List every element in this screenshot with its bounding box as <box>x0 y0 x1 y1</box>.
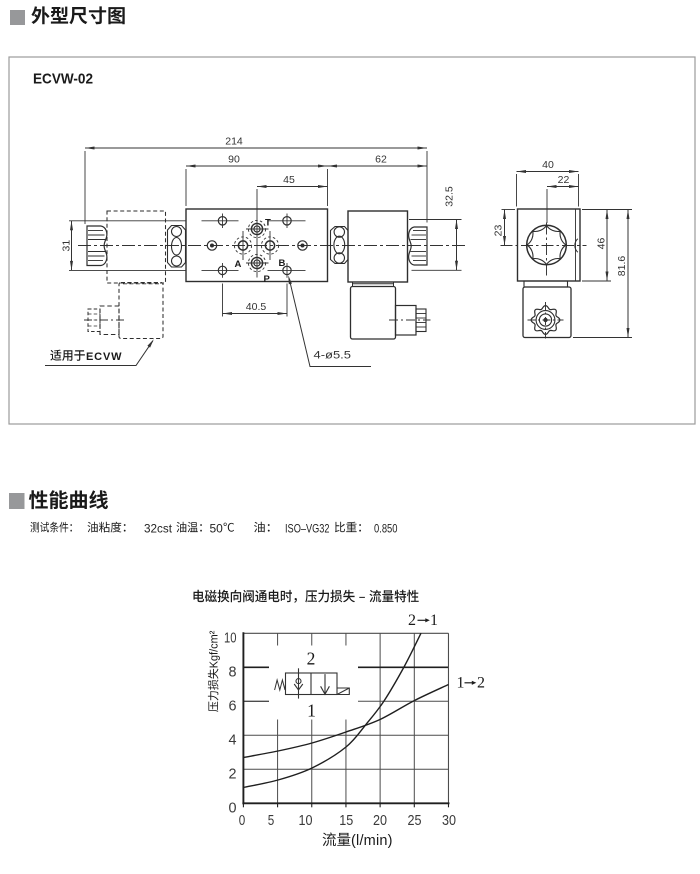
svg-text:4-ø5.5: 4-ø5.5 <box>314 350 352 362</box>
svg-text:4: 4 <box>228 733 236 749</box>
svg-text:1: 1 <box>430 612 438 629</box>
svg-text:214: 214 <box>225 136 243 148</box>
svg-text:ISO–VG32: ISO–VG32 <box>285 522 330 536</box>
svg-text:P: P <box>264 274 271 285</box>
svg-text:(l/min): (l/min) <box>351 833 393 849</box>
svg-text:90: 90 <box>228 154 240 166</box>
svg-text:45: 45 <box>283 174 295 186</box>
svg-text:32cst: 32cst <box>144 522 173 536</box>
svg-text:0.850: 0.850 <box>374 522 398 536</box>
svg-text:ECVW: ECVW <box>86 351 122 363</box>
svg-text:ECVW-02: ECVW-02 <box>33 71 93 88</box>
svg-text:0: 0 <box>239 813 246 829</box>
svg-text:1: 1 <box>457 674 465 691</box>
svg-text:10: 10 <box>224 631 237 647</box>
svg-text:A: A <box>235 259 242 270</box>
svg-text:2: 2 <box>408 612 416 629</box>
svg-text:1: 1 <box>307 700 316 720</box>
svg-text:20: 20 <box>373 813 387 829</box>
svg-text:T: T <box>265 218 271 229</box>
svg-text:23: 23 <box>493 225 505 237</box>
svg-text:10: 10 <box>299 813 313 829</box>
svg-text:B: B <box>279 258 286 269</box>
svg-text:2: 2 <box>477 674 485 691</box>
svg-text:2: 2 <box>307 649 316 669</box>
svg-text:15: 15 <box>339 813 353 829</box>
svg-text:22: 22 <box>558 174 570 186</box>
svg-text:40.5: 40.5 <box>246 301 267 313</box>
svg-text:31: 31 <box>60 240 72 252</box>
svg-text:81.6: 81.6 <box>616 256 628 277</box>
svg-text:46: 46 <box>595 238 607 250</box>
svg-text:0: 0 <box>228 801 236 817</box>
svg-text:32.5: 32.5 <box>444 186 456 207</box>
svg-text:2: 2 <box>228 767 236 783</box>
svg-text:50: 50 <box>210 522 224 536</box>
svg-text:30: 30 <box>442 813 456 829</box>
svg-text:6: 6 <box>228 699 236 715</box>
svg-text:62: 62 <box>375 154 387 166</box>
svg-text:8: 8 <box>228 665 236 681</box>
svg-text:40: 40 <box>542 159 554 171</box>
svg-text:5: 5 <box>268 813 275 829</box>
svg-text:25: 25 <box>408 813 422 829</box>
